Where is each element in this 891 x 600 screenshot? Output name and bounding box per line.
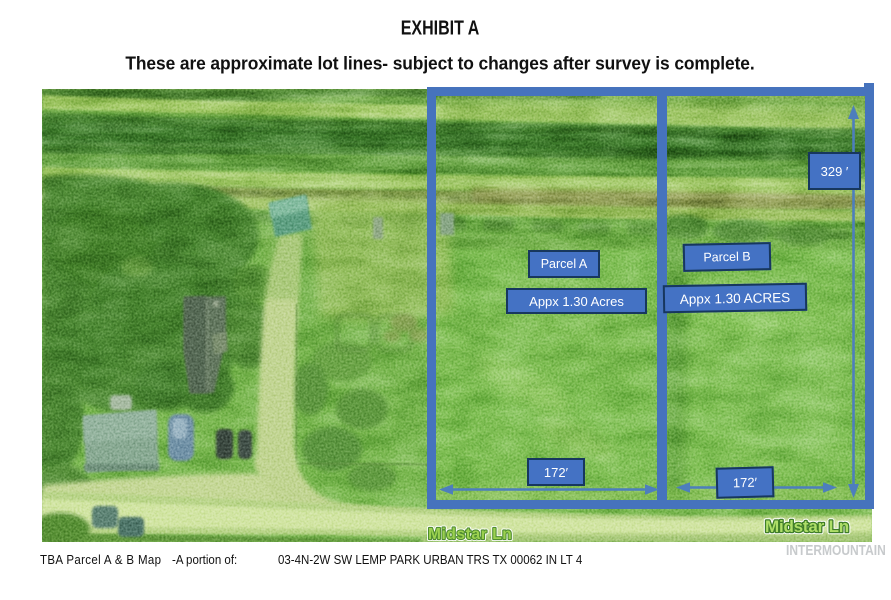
svg-text:Midstar Ln: Midstar Ln <box>765 517 849 536</box>
svg-text:Midstar Ln: Midstar Ln <box>428 526 512 543</box>
